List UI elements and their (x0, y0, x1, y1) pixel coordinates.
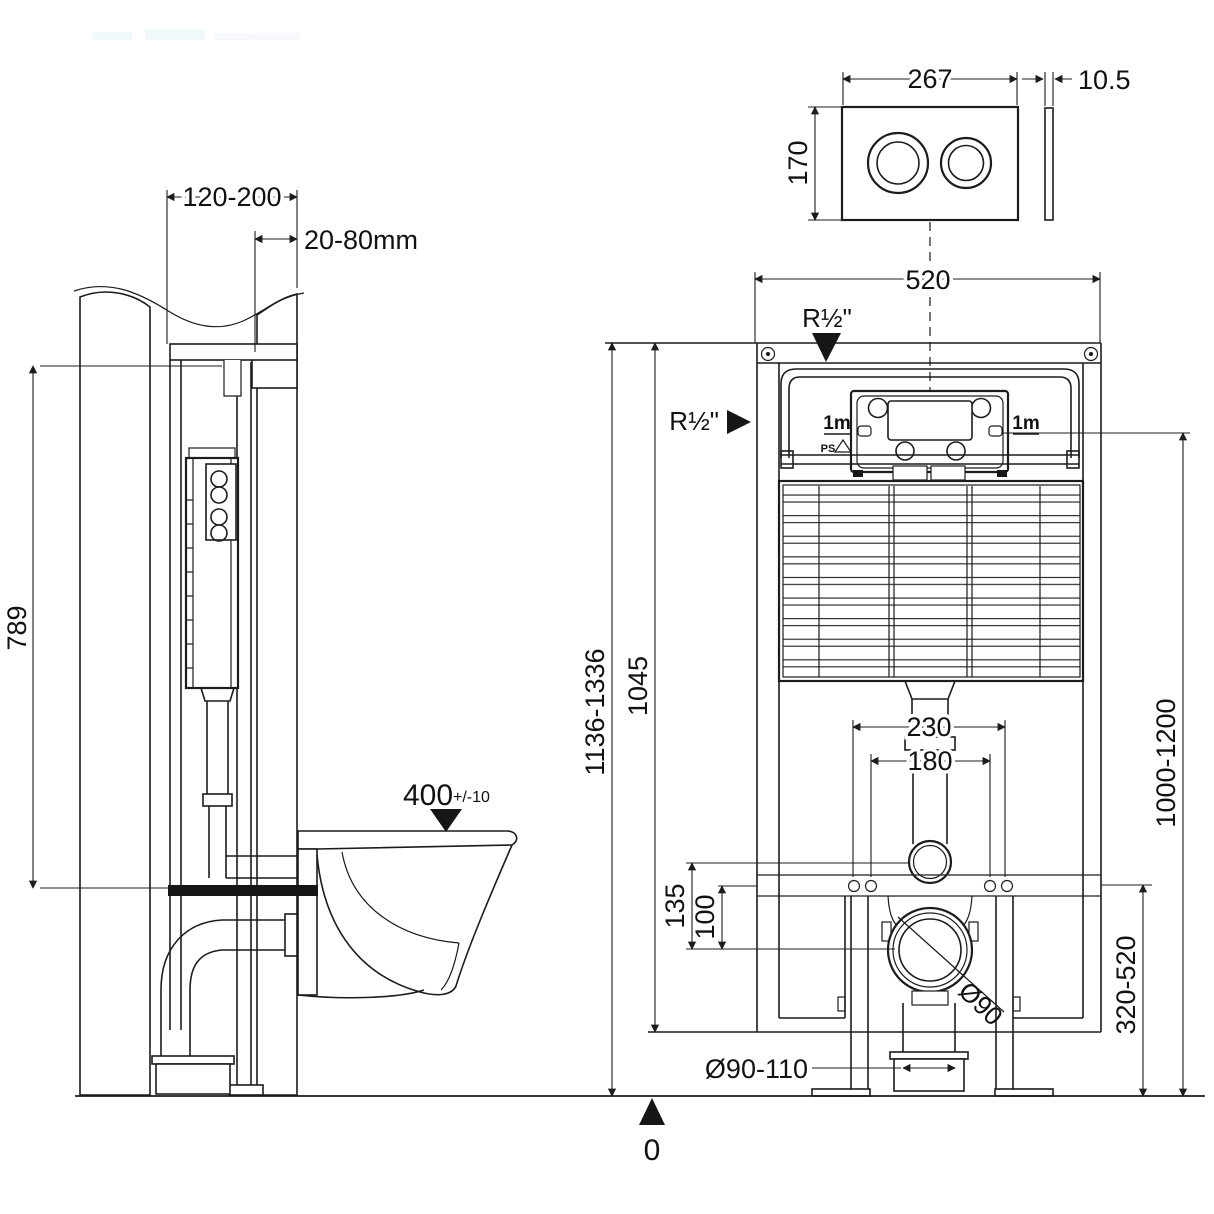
dim-bowl-height-tolerance: +/-10 (453, 789, 490, 806)
dim-waste-diameter: Ø90 (953, 976, 1009, 1032)
dim-hanger-height: 789 (2, 605, 32, 650)
corner-screw-left (762, 348, 775, 361)
waste-elbow-side (152, 914, 297, 1094)
toilet-seat (298, 831, 517, 849)
side-view-dimensions: 120-200 20-80mm 789 400 +/-10 (2, 182, 490, 888)
installation-drawing: 120-200 20-80mm 789 400 +/-10 267 10.5 1… (0, 0, 1214, 1214)
material-label: PS (821, 443, 836, 455)
dim-frame-depth: 120-200 (182, 182, 281, 212)
seat-fixing-bar (168, 885, 318, 896)
recycling-icon (835, 440, 851, 452)
finished-wall-hatched (257, 294, 297, 1095)
floor-datum: 0 (75, 1096, 1205, 1167)
dim-frame-height: 1045 (623, 656, 653, 716)
dim-flushpipe-offset: 135 (660, 883, 690, 928)
cistern-grid-panel (783, 492, 1080, 678)
dim-plate-width: 267 (907, 64, 952, 94)
wall-hanger-bracket (170, 344, 297, 396)
watermark-artifact (92, 30, 300, 40)
inlet-top-arrow-icon (812, 333, 841, 362)
toilet-bowl (298, 831, 517, 998)
access-box (851, 391, 1008, 480)
datum-arrow-icon (639, 1098, 665, 1125)
front-view: R½" R½" 1m PS 1m (605, 303, 1190, 1096)
svg-text:1m: 1m (823, 413, 850, 434)
cistern-front (779, 481, 1083, 681)
side-view (74, 287, 517, 1095)
flush-pipe-side (201, 688, 297, 878)
dim-wall-thickness: 20-80mm (304, 225, 418, 255)
flush-plate-side-profile (1045, 108, 1053, 220)
dim-frame-width: 520 (905, 265, 950, 295)
dim-overall-height: 1136-1336 (580, 648, 610, 775)
dim-inlet-height: 1000-1200 (1151, 698, 1181, 827)
rear-wall-hatched (80, 292, 150, 1095)
technical-drawing-canvas: 120-200 20-80mm 789 400 +/-10 267 10.5 1… (0, 0, 1214, 1214)
dim-waste-height-range: 320-520 (1111, 935, 1141, 1034)
flush-bend-outlet (909, 841, 951, 883)
datum-label: 0 (644, 1134, 661, 1167)
svg-text:1m: 1m (1012, 413, 1039, 434)
inlet-top-label: R½" (802, 303, 852, 333)
cistern-side-profile (186, 448, 238, 688)
level-arrow-icon (430, 809, 462, 832)
foot-left (812, 1089, 870, 1096)
inlet-side-label: R½" (669, 406, 719, 436)
dim-rail-offset: 100 (690, 894, 720, 939)
foot-right (995, 1089, 1053, 1096)
dim-bowl-height: 400 (403, 779, 453, 812)
dim-waste-socket-diameter: Ø90-110 (705, 1054, 808, 1084)
dim-plate-height: 170 (783, 140, 813, 185)
dim-fixing-centres: 180 (907, 746, 952, 776)
waste-socket (894, 1059, 964, 1091)
dim-outlet-centres: 230 (906, 712, 951, 742)
dim-plate-thickness: 10.5 (1078, 65, 1131, 95)
hose-right-label: 1m (1012, 413, 1039, 434)
corner-screw-right (1085, 348, 1098, 361)
hose-left-label: 1m PS (821, 413, 851, 455)
inlet-side-arrow-icon (727, 410, 751, 434)
waste-socket-flange (890, 1052, 968, 1059)
